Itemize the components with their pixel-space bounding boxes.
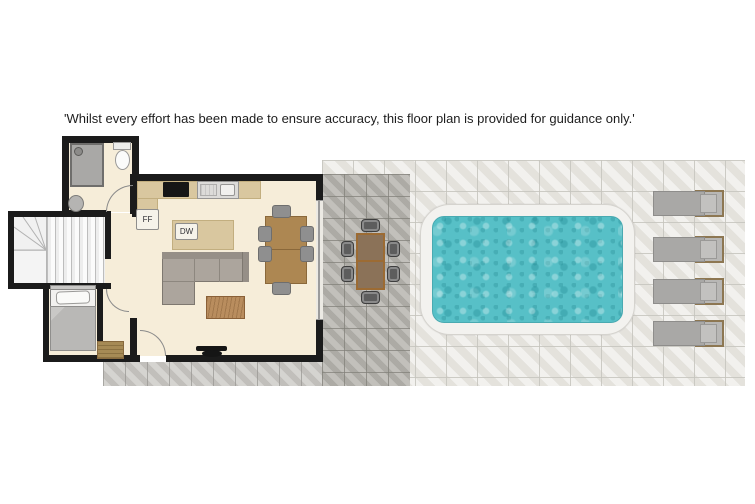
- dining-chair: [272, 205, 291, 218]
- wall-segment: [43, 355, 140, 362]
- toilet-cistern: [113, 142, 131, 150]
- wall-segment: [105, 211, 111, 259]
- outdoor-chair: [341, 241, 354, 257]
- lounger-cushion: [653, 237, 705, 262]
- lounger-headrest: [700, 324, 717, 343]
- dining-chair: [300, 226, 314, 242]
- wash-basin: [68, 195, 84, 212]
- sofa-seam: [194, 259, 195, 282]
- stair-treads: [46, 217, 105, 283]
- wall-segment: [166, 355, 323, 362]
- lounger-headrest: [700, 240, 717, 259]
- hob: [163, 182, 189, 197]
- outdoor-chair: [361, 219, 380, 232]
- coffee-table: [206, 296, 245, 319]
- lounger-cushion: [653, 279, 705, 304]
- outdoor-chair: [387, 241, 400, 257]
- outdoor-chair: [387, 266, 400, 282]
- sofa-back: [162, 252, 249, 259]
- dining-chair: [258, 226, 272, 242]
- dining-chair: [272, 282, 291, 295]
- outdoor-chair: [341, 266, 354, 282]
- sofa-seam: [163, 281, 195, 282]
- wall-segment: [316, 174, 323, 200]
- wall-segment: [8, 211, 14, 289]
- walkway-tiles: [103, 362, 322, 386]
- dining-chair: [258, 246, 272, 262]
- lounger-cushion: [653, 191, 705, 216]
- sink-bowl: [220, 184, 235, 196]
- wall-segment: [8, 211, 111, 217]
- lounger-headrest: [700, 282, 717, 301]
- sofa-armrest: [242, 252, 249, 282]
- stair-landing: [14, 250, 46, 283]
- floor-plan: 'Whilst every effort has been made to en…: [0, 0, 755, 504]
- outdoor-table-divider: [357, 260, 384, 262]
- outdoor-chair: [361, 291, 380, 304]
- tv-stand: [202, 350, 222, 357]
- stair-winders: [14, 217, 46, 250]
- bed-headboard: [50, 285, 96, 290]
- wall-segment: [130, 174, 323, 181]
- sink-drainer: [200, 184, 217, 196]
- sun-lounger: [653, 278, 724, 305]
- wall-segment: [43, 283, 49, 362]
- toilet: [115, 150, 130, 170]
- doormat: [97, 341, 124, 359]
- shower-head-icon: [74, 147, 83, 156]
- disclaimer-text: 'Whilst every effort has been made to en…: [64, 111, 664, 126]
- swimming-pool: [432, 216, 623, 323]
- pillow: [56, 290, 90, 304]
- sun-lounger: [653, 190, 724, 217]
- dishwasher-label: DW: [175, 223, 198, 240]
- sofa-seam: [219, 259, 220, 282]
- patio-slider-track: [318, 200, 320, 320]
- sun-lounger: [653, 236, 724, 263]
- bed-blanket: [50, 306, 96, 351]
- sun-lounger: [653, 320, 724, 347]
- fridge-freezer-label: FF: [136, 209, 159, 230]
- dining-chair: [300, 246, 314, 262]
- lounger-cushion: [653, 321, 705, 346]
- lounger-headrest: [700, 194, 717, 213]
